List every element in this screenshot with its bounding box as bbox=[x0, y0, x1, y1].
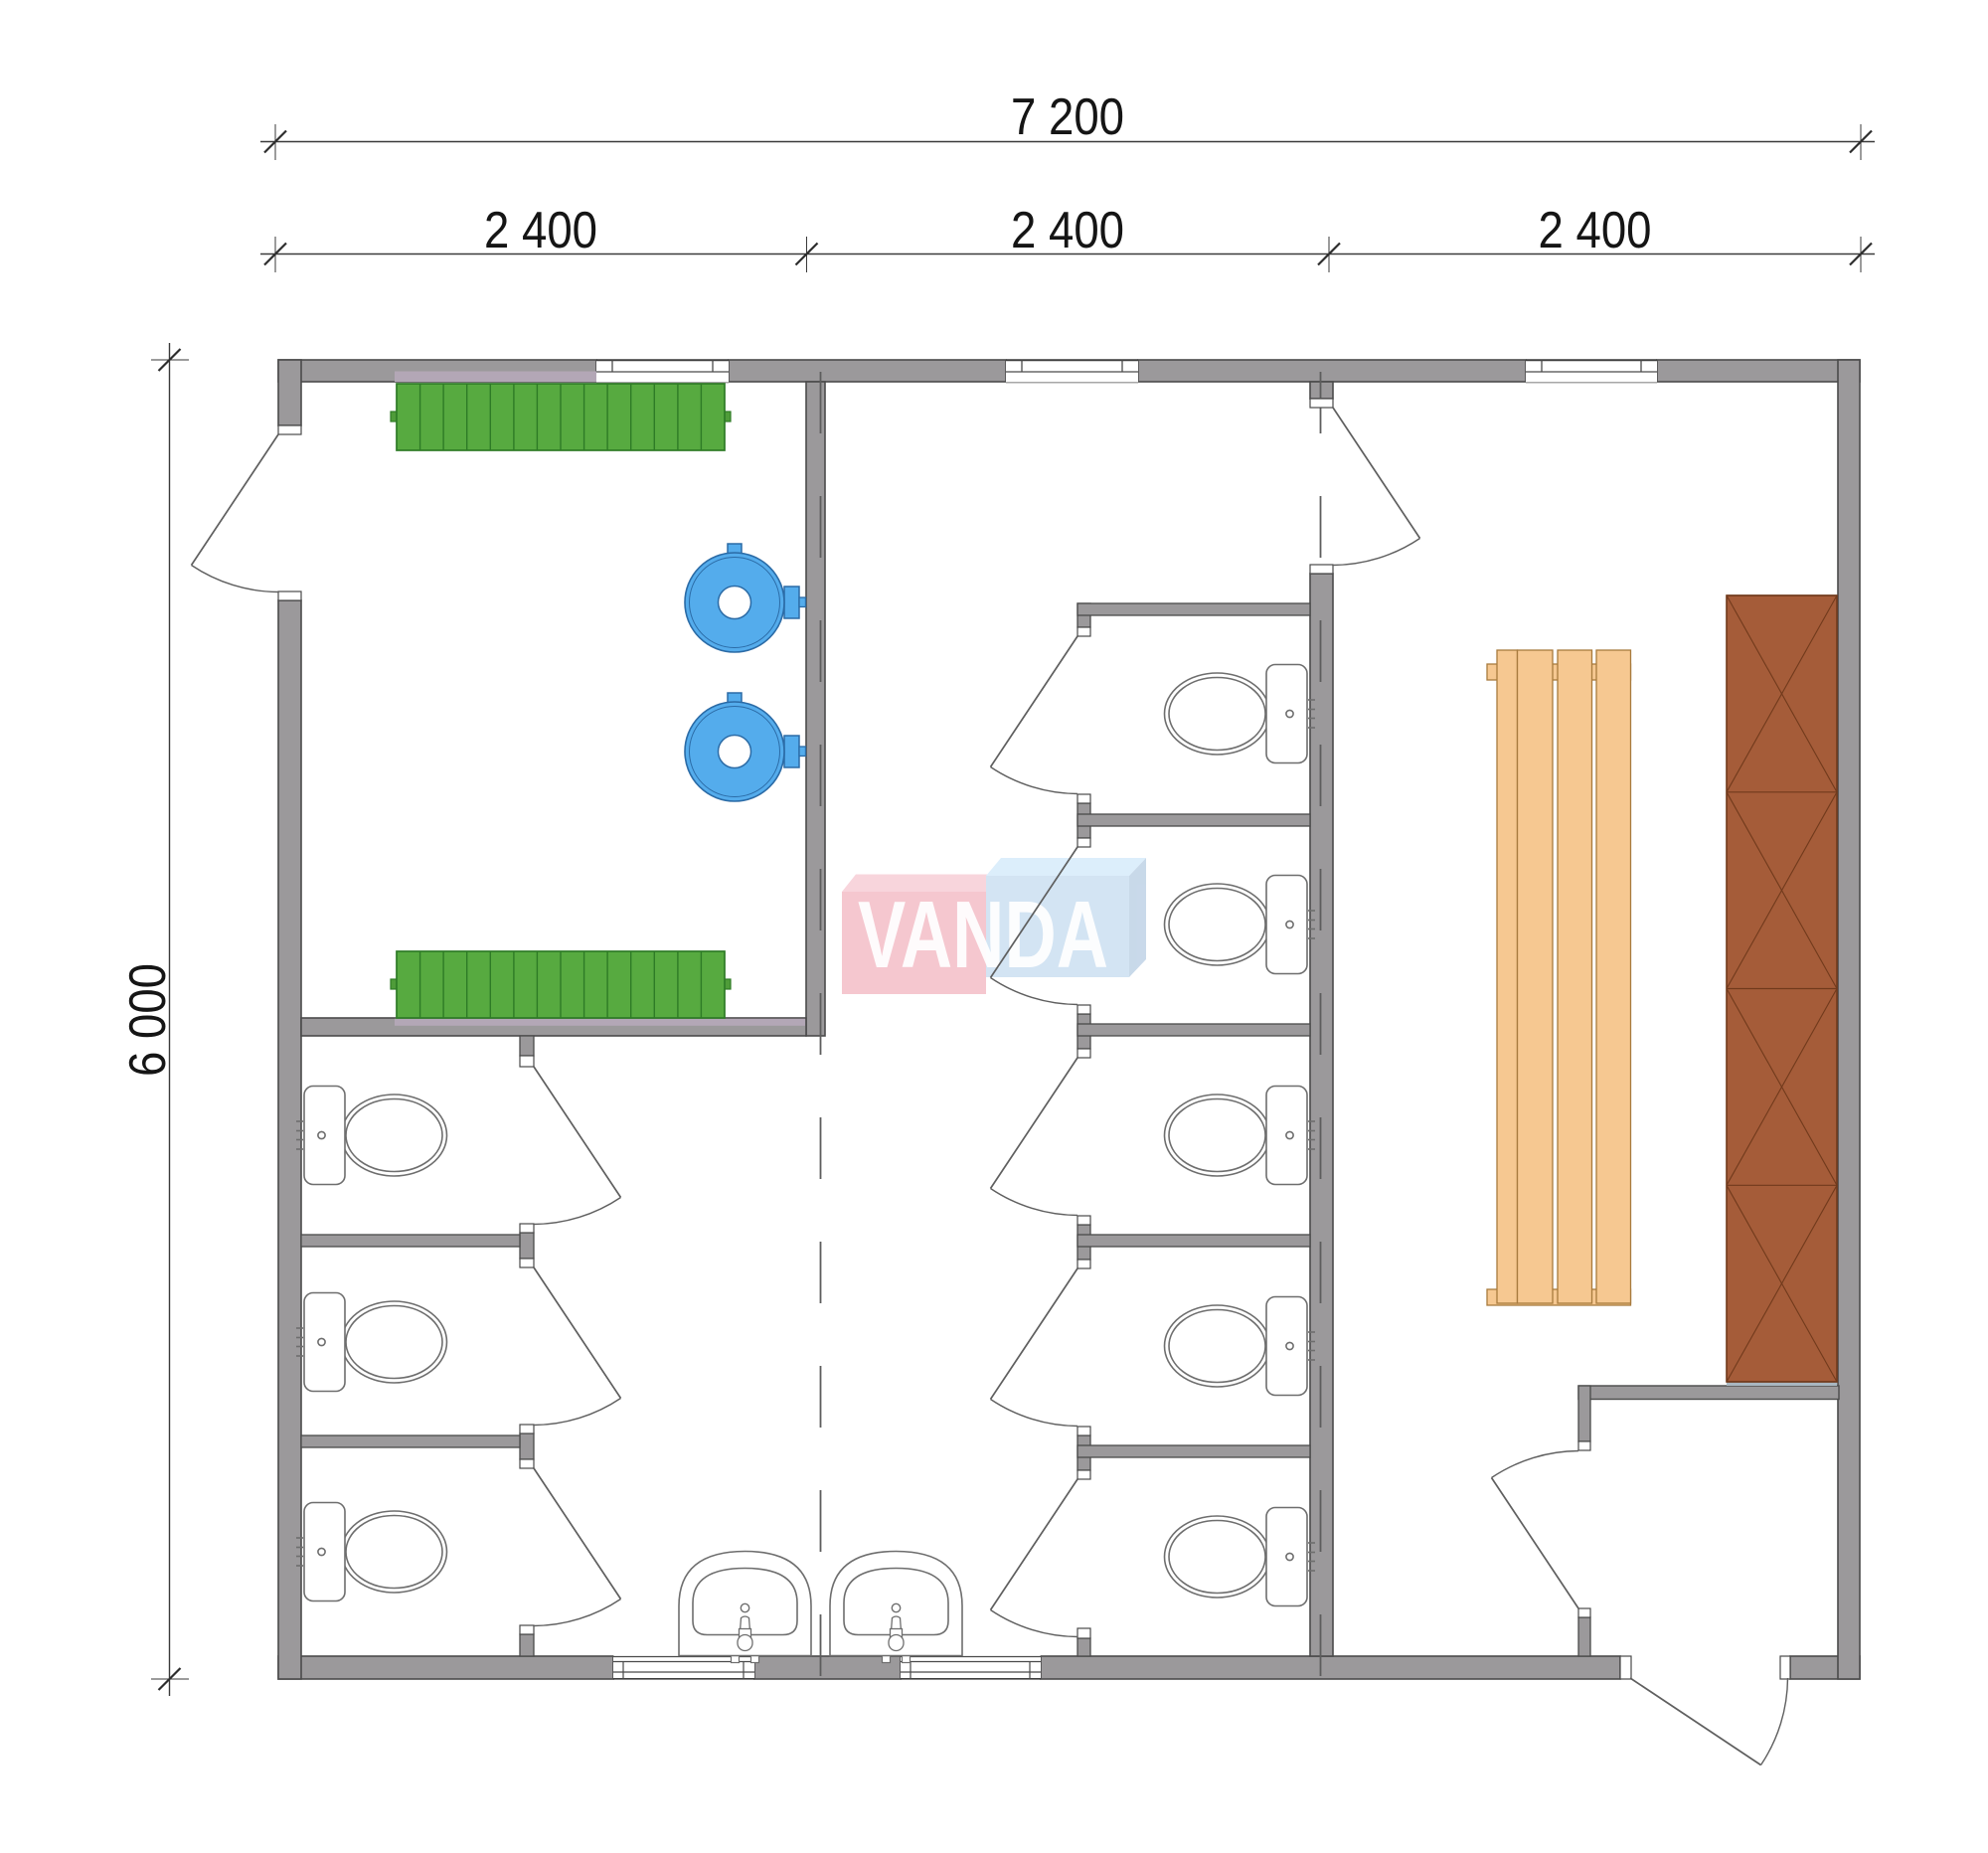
svg-text:2 400: 2 400 bbox=[1011, 202, 1124, 259]
svg-text:2 400: 2 400 bbox=[1539, 202, 1652, 259]
svg-text:2 400: 2 400 bbox=[484, 202, 597, 259]
svg-text:VANDA: VANDA bbox=[858, 882, 1108, 988]
svg-text:6 000: 6 000 bbox=[119, 963, 177, 1077]
svg-text:7 200: 7 200 bbox=[1011, 88, 1124, 146]
